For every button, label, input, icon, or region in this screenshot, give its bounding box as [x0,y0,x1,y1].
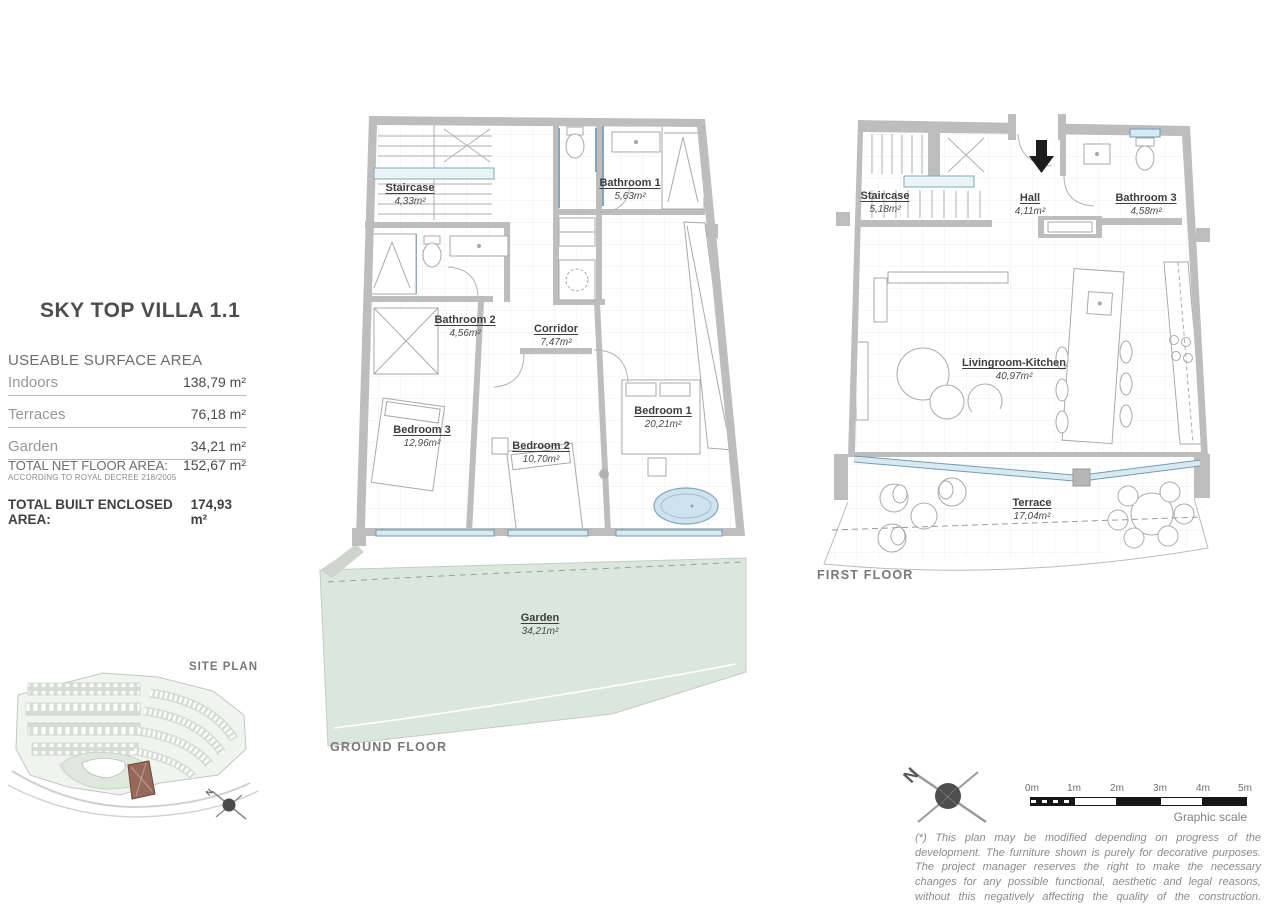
room-label-bathroom-3: Bathroom 3 4,58m² [1115,192,1176,218]
site-plan-caption: SITE PLAN [189,661,258,673]
surface-area-table: Indoors 138,79 m² Terraces 76,18 m² Gard… [8,372,246,460]
site-plan: SITE PLAN [8,653,260,835]
room-label-staircase-ff: Staircase 5,18m² [861,190,910,216]
window-strip [376,530,722,536]
bathtub [654,488,718,524]
first-floor-plan: Staircase 5,18m² Hall 4,11m² Bathroom 3 … [812,112,1224,594]
scale-tick: 4m [1190,783,1216,794]
ground-floor-caption: GROUND FLOOR [330,740,447,754]
column [599,469,609,479]
table-row: Indoors 138,79 m² [8,372,246,396]
table-row: Garden 34,21 m² [8,428,246,460]
room-label-livingroom-kitchen: Livingroom-Kitchen 40,97m² [962,357,1066,383]
surface-area-heading: USEABLE SURFACE AREA [8,352,202,369]
room-label-bedroom-2: Bedroom 2 10,70m² [512,440,569,466]
total-net-label: TOTAL NET FLOOR AREA: [8,458,168,473]
row-value: 34,21 m² [191,438,246,454]
floor-plan-sheet: SKY TOP VILLA 1.1 USEABLE SURFACE AREA I… [0,0,1277,905]
scale-tick: 1m [1061,783,1087,794]
room-label-bathroom-1: Bathroom 1 5,63m² [599,177,660,203]
entrance-opening [1014,116,1060,138]
row-value: 76,18 m² [191,406,246,422]
scale-tick: 2m [1104,783,1130,794]
table-row: Terraces 76,18 m² [8,396,246,428]
graphic-scale: 0m 1m 2m 3m 4m 5m Graphic scale [1030,783,1249,823]
room-label-corridor: Corridor 7,47m² [534,323,578,349]
svg-text:N: N [899,764,923,787]
garden-area [320,544,746,746]
page-title: SKY TOP VILLA 1.1 [40,299,240,323]
disclaimer-text: (*) This plan may be modified depending … [915,831,1261,905]
scale-tick: 5m [1232,783,1258,794]
row-label: Garden [8,438,58,455]
scale-caption: Graphic scale [1174,810,1247,824]
row-label: Terraces [8,406,66,423]
room-label-bathroom-2: Bathroom 2 4,56m² [434,314,495,340]
scale-tick: 3m [1147,783,1173,794]
stair-landing [374,168,494,179]
mini-north-arrow-icon: N [204,787,246,819]
royal-decree-note: ACCORDING TO ROYAL DECREE 218/2005 [8,473,176,482]
room-label-bedroom-3: Bedroom 3 12,96m² [393,424,450,450]
site-plan-drawing: N [8,653,260,835]
scale-bar [1030,797,1247,806]
total-built-value: 174,93 m² [191,497,244,527]
row-value: 138,79 m² [183,374,246,390]
room-label-hall: Hall 4,11m² [1015,192,1045,218]
north-arrow-icon: N [898,756,994,834]
room-label-staircase: Staircase 4,33m² [386,182,435,208]
total-built-label: TOTAL BUILT ENCLOSED AREA: [8,497,191,527]
total-net-value: 152,67 m² [183,457,246,473]
scale-tick: 0m [1019,783,1045,794]
stair-landing [904,176,974,187]
room-label-garden: Garden 34,21m² [521,612,560,638]
total-built-area: TOTAL BUILT ENCLOSED AREA: 174,93 m² [8,497,244,527]
shower-tray [1130,129,1160,137]
room-label-bedroom-1: Bedroom 1 20,21m² [634,405,691,431]
row-label: Indoors [8,374,58,391]
total-net-floor-area: TOTAL NET FLOOR AREA: 152,67 m² [8,457,246,473]
first-floor-caption: FIRST FLOOR [817,568,914,582]
ground-floor-plan: Staircase 4,33m² Bathroom 1 5,63m² Bathr… [312,112,760,772]
room-label-terrace: Terrace 17,04m² [1013,497,1052,523]
